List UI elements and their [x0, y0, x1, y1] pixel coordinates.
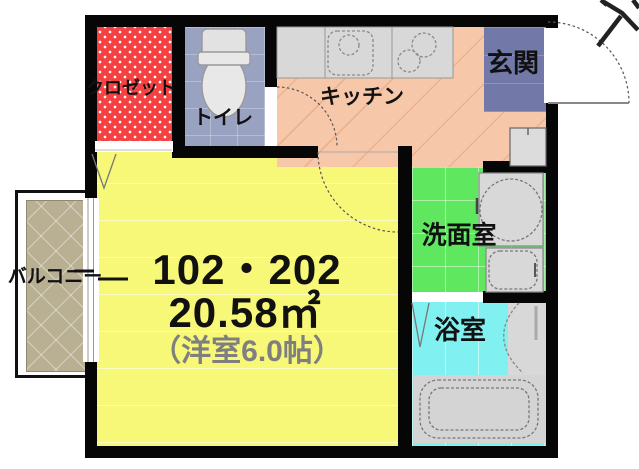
shower-panel-icon: [504, 303, 546, 375]
unit-area: 20.58㎡: [168, 292, 321, 334]
floor-plan: クロゼット トイレ キッチン 玄関 洗面室 浴室 バルコニー 102・202 2…: [0, 0, 639, 469]
kitchen-label: キッチン: [320, 87, 404, 108]
fixtures-layer: [0, 0, 639, 469]
bathtub-icon: [414, 375, 546, 443]
entrance-door-swing-icon: [548, 22, 629, 103]
unit-room-note: （洋室6.0帖）: [151, 337, 343, 367]
kitchen-counter-icon: [277, 27, 453, 78]
unit-numbers: 102・202: [152, 249, 341, 291]
shoe-cabinet-icon: [510, 128, 546, 166]
washbasin-icon: [486, 248, 543, 292]
washroom-label: 洗面室: [421, 224, 496, 249]
toilet-fixture-icon: [198, 29, 250, 117]
toilet-label: トイレ: [193, 108, 253, 128]
folding-door-icon: [412, 303, 429, 347]
folding-door-icon: [92, 154, 116, 188]
north-arrow-icon: [598, 0, 639, 46]
closet-label: クロゼット: [86, 79, 176, 97]
balcony-label: バルコニー: [8, 268, 103, 287]
room-door-swing-icon: [318, 152, 398, 232]
entrance-label: 玄関: [487, 50, 539, 76]
bathroom-label: 浴室: [434, 317, 486, 343]
